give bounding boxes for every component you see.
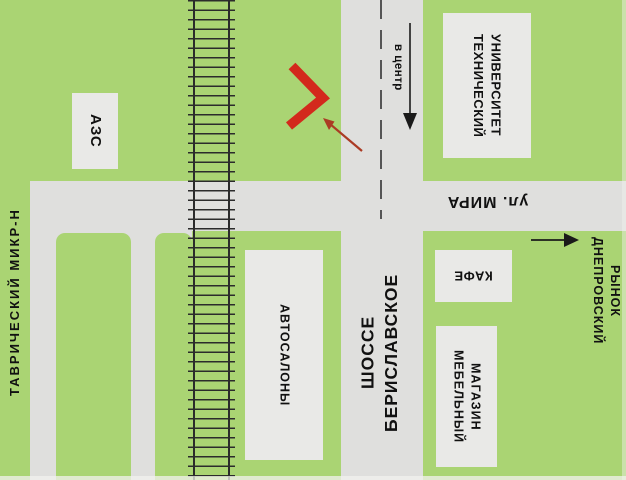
railroad-rail-left <box>193 0 195 480</box>
highway-centerline <box>380 0 382 219</box>
gas-station-box: АЗС <box>72 93 118 169</box>
university-box: ТЕХНИЧЕСКИЙ УНИВЕРСИТЕТ <box>443 13 531 158</box>
cafe-label: КАФЕ <box>454 267 493 285</box>
to-center-label: в центр <box>386 38 408 96</box>
location-marker-icon <box>289 66 323 126</box>
car-dealers-box: АВТОСАЛОНЫ <box>245 250 323 460</box>
railroad-rail-right <box>228 0 230 480</box>
map-right-edge <box>622 0 626 480</box>
city-block-left <box>56 233 131 480</box>
furniture-store-box: МЕБЕЛЬНЫЙ МАГАЗИН <box>436 326 497 467</box>
cafe-box: КАФЕ <box>435 250 512 302</box>
gas-station-label: АЗС <box>85 114 105 148</box>
mira-street-label: ул. МИРА <box>430 188 545 214</box>
university-label: ТЕХНИЧЕСКИЙ УНИВЕРСИТЕТ <box>469 34 504 137</box>
market-label: ДНЕПРОВСКИЙ РЫНОК <box>588 228 624 353</box>
map-bottom-edge <box>0 476 626 480</box>
right-arrow-icon <box>531 233 579 247</box>
car-dealers-label: АВТОСАЛОНЫ <box>276 304 293 406</box>
furniture-store-label: МЕБЕЛЬНЫЙ МАГАЗИН <box>450 350 484 443</box>
city-block-right <box>155 233 192 480</box>
district-label: ТАВРИЧЕСКИЙ МИКР-Н <box>1 205 29 400</box>
highway-label: БЕРИСЛАВСКОЕ ШОССЕ <box>360 240 400 465</box>
city-scheme-map: АЗС ТЕХНИЧЕСКИЙ УНИВЕРСИТЕТ АВТОСАЛОНЫ К… <box>0 0 626 480</box>
